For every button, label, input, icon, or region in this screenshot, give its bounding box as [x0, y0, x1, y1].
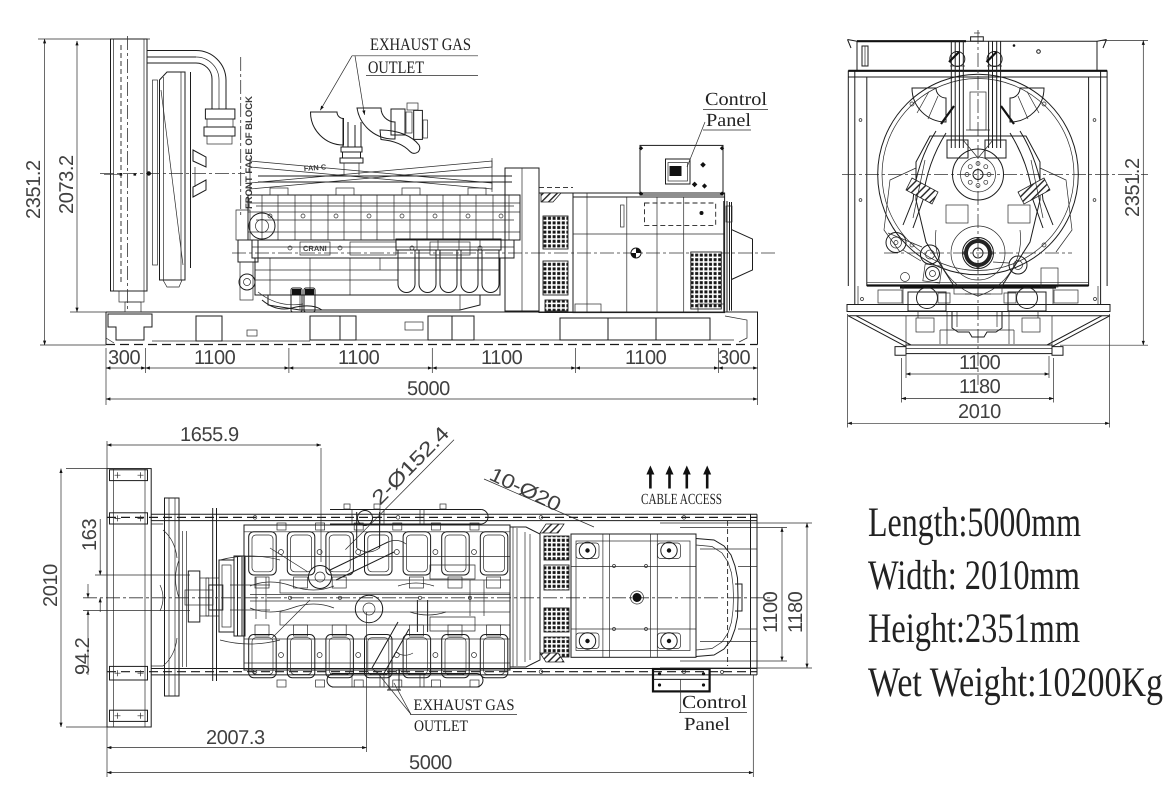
svg-text:2351.2: 2351.2	[1122, 158, 1144, 217]
svg-text:300: 300	[108, 347, 140, 369]
svg-text:Length:5000mm: Length:5000mm	[868, 500, 1081, 546]
svg-text:2007.3: 2007.3	[206, 727, 265, 749]
svg-text:Width: 2010mm: Width: 2010mm	[868, 553, 1080, 599]
svg-text:163: 163	[79, 519, 101, 551]
svg-text:CABLE ACCESS: CABLE ACCESS	[641, 491, 722, 508]
svg-text:2010: 2010	[40, 564, 62, 607]
svg-text:Control: Control	[682, 693, 747, 713]
svg-text:94.2: 94.2	[72, 637, 94, 675]
svg-text:FRONT FACE OF BLOCK: FRONT FACE OF BLOCK	[244, 96, 255, 209]
svg-text:EXHAUST GAS: EXHAUST GAS	[370, 34, 471, 54]
svg-text:OUTLET: OUTLET	[368, 57, 424, 77]
svg-text:300: 300	[718, 347, 750, 369]
svg-text:1180: 1180	[785, 591, 807, 633]
svg-text:2010: 2010	[958, 401, 1001, 423]
svg-text:5000: 5000	[407, 378, 450, 400]
svg-text:2073.2: 2073.2	[56, 155, 78, 214]
svg-text:EXHAUST GAS: EXHAUST GAS	[414, 697, 515, 714]
svg-text:1180: 1180	[959, 376, 1001, 398]
svg-text:1100: 1100	[338, 347, 380, 369]
svg-text:FAN C: FAN C	[304, 162, 328, 173]
svg-text:5000: 5000	[409, 752, 452, 774]
svg-text:OUTLET: OUTLET	[414, 718, 468, 735]
svg-text:1100: 1100	[959, 352, 1001, 374]
svg-text:CRANI: CRANI	[303, 244, 327, 253]
svg-text:1100: 1100	[625, 347, 667, 369]
svg-text:Control: Control	[705, 90, 767, 110]
svg-text:Panel: Panel	[684, 715, 730, 735]
svg-text:1655.9: 1655.9	[180, 424, 239, 446]
svg-text:Wet Weight:10200Kg: Wet Weight:10200Kg	[868, 660, 1163, 706]
svg-text:1100: 1100	[194, 347, 236, 369]
svg-text:Height:2351mm: Height:2351mm	[868, 606, 1080, 652]
svg-text:1100: 1100	[481, 347, 523, 369]
svg-text:1100: 1100	[760, 591, 782, 633]
svg-text:Panel: Panel	[706, 111, 751, 131]
svg-text:2351.2: 2351.2	[23, 160, 45, 219]
